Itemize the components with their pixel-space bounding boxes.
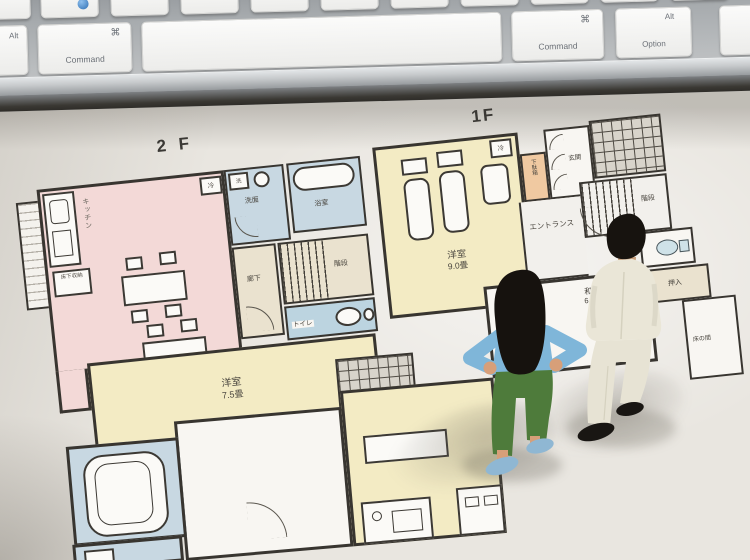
bed [438, 169, 470, 233]
function-key [670, 0, 729, 1]
woman-hair [494, 270, 545, 375]
command-symbol-icon: ⌘ [580, 14, 590, 25]
kitchen-counter [42, 191, 82, 268]
fridge-box-1f: 冷 [489, 138, 513, 158]
man-jacket [586, 259, 661, 341]
closet-arc [550, 154, 566, 170]
washer-box: 洗 [228, 172, 250, 191]
function-key [320, 0, 379, 11]
washroom-label: 洗面 [245, 197, 260, 206]
washroom-sink [253, 170, 271, 188]
woman-hand [484, 362, 497, 375]
key-option-left-partial: Alt tion [0, 25, 29, 77]
bed-headboard [436, 149, 464, 168]
chair [125, 256, 143, 271]
key-option-left-top-label: Alt [9, 31, 19, 40]
function-key [600, 0, 659, 3]
door-arc [246, 499, 287, 540]
blue-function-icon [77, 0, 88, 10]
function-key [390, 0, 449, 9]
key-command-left-label: Command [39, 53, 131, 66]
key-option-right: Alt Option [615, 6, 692, 58]
function-key [110, 0, 169, 17]
burner [484, 495, 499, 506]
sink-box [84, 548, 115, 560]
bathroom: 浴室 [286, 156, 367, 233]
kitchen-label: キッチン [81, 197, 92, 230]
function-key [40, 0, 99, 19]
key-command-right: ⌘ Command [511, 9, 604, 62]
key-option-right-top-label: Alt [665, 12, 675, 21]
bathtub [82, 450, 171, 539]
key-command-right-label: Command [513, 40, 603, 53]
fridge-box-2f: 冷 [199, 176, 223, 196]
function-key [250, 0, 309, 13]
bathtub [292, 162, 356, 192]
floorplan-1f-title: 1F [470, 105, 496, 127]
key-option-right-bottom-label: Option [617, 38, 691, 49]
ldk-room: 床下収納 キッチン 冷 [37, 170, 243, 375]
chair [131, 309, 149, 324]
function-key [180, 0, 239, 15]
toilet-label: トイレ [292, 320, 314, 330]
door-arc [246, 304, 275, 333]
stairs-label-2f: 階段 [334, 260, 349, 269]
closet-arc [548, 134, 564, 150]
porch-tiles [589, 113, 667, 178]
hallway-2f: 廊下 [232, 243, 285, 339]
man-arm-shade [654, 284, 656, 326]
washroom: 洗 洗面 [223, 164, 291, 246]
hallway-label: 廊下 [247, 275, 262, 284]
toilet-tank [363, 307, 375, 321]
man-shoe [615, 400, 645, 419]
bathtub-inner [93, 460, 154, 527]
woman-hand [550, 359, 563, 372]
command-symbol-icon: ⌘ [110, 27, 120, 38]
bath-room-partial [66, 437, 187, 546]
stairs-label-1f: 階段 [641, 195, 656, 204]
chair [180, 318, 198, 333]
floorplan-2f-title: 2 F [156, 133, 194, 157]
chair [164, 303, 182, 318]
photo-scene: 2 F 床下収納 キッチン 冷 洗 洗面 [0, 0, 750, 560]
hall-room [174, 407, 354, 560]
function-key [460, 0, 519, 7]
bed-headboard [401, 157, 429, 176]
sink-basin [392, 508, 424, 533]
key-command-left: ⌘ Command [37, 22, 132, 75]
bathroom-label: 浴室 [314, 199, 329, 208]
toilet-bowl [335, 306, 363, 328]
man-arm-shade [593, 286, 595, 328]
shoe-cabinet-label: 下駄箱 [529, 159, 537, 176]
underfloor-storage-box: 床下収納 [52, 268, 93, 298]
chair [146, 323, 164, 338]
kitchen-sink [49, 199, 70, 225]
dining-table [121, 270, 188, 307]
man-figurine [566, 206, 711, 454]
faucet [372, 511, 383, 522]
kitchen-stove [52, 230, 74, 258]
sofa [480, 163, 512, 206]
man-hair [607, 214, 646, 260]
bed [403, 177, 435, 241]
key-partial-right [719, 4, 750, 55]
burner [465, 496, 480, 507]
stair-steps [280, 240, 332, 302]
key-spacebar [141, 12, 502, 72]
chair [159, 251, 177, 266]
function-key [0, 0, 31, 20]
stairs-2f: 階段 [277, 233, 374, 304]
closet-arc [552, 174, 568, 190]
door-arc [234, 215, 258, 239]
function-key [530, 0, 589, 5]
entry-label: 玄関 [568, 154, 582, 163]
sink-unit [361, 496, 434, 544]
